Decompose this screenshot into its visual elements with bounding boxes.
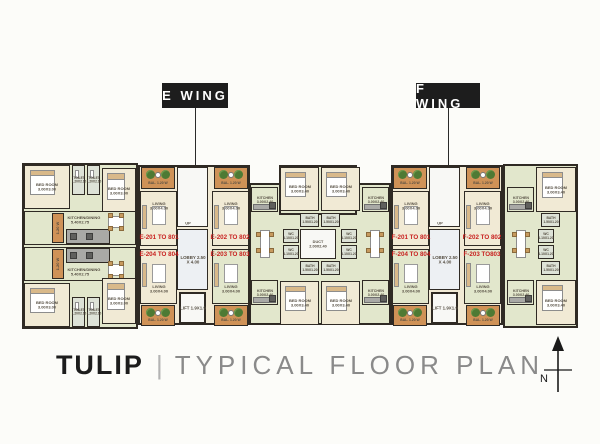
kitchen-room: KITCHEN 3.00X2.40 [362,280,389,305]
pillow [542,172,563,178]
room-label: DUCT 2.00X2.40 [306,240,330,249]
chair [366,232,371,237]
room-room: LOBBY 2.50 X 4.00 [177,229,208,290]
living-room: LIVING 3.00X4.00 [464,249,501,304]
wet-room: TOILET 1.20X2.10 [87,165,100,195]
rug [404,206,419,225]
chair [108,226,113,231]
counter-room [66,248,110,263]
plant-icon [486,170,495,179]
toilet-fixture [90,170,94,178]
table-room [104,262,128,278]
kitchen-room: KITCHEN 3.00X2.40 [507,187,534,212]
living-room: LIVING 3.00X4.00 [392,191,429,246]
room-label: BAL. 1.20 W [400,181,421,185]
appliance [70,252,77,259]
plant-icon [161,170,170,179]
rug [404,264,419,283]
title-separator: | [156,350,163,381]
bedroom-room: BED ROOM 3.00X3.40 [321,167,360,211]
stairs-room [429,167,460,227]
room-room: BATH 1.50X1.20 [541,213,560,227]
plant-icon [234,170,243,179]
room-room: WC 1.10X1.20 [283,229,299,243]
chair [379,232,384,237]
room-label: WC 1.10X1.20 [339,232,360,240]
sofa [466,263,470,287]
wet-room: TOILET 1.20X2.10 [87,297,100,327]
room-room: BATH 1.50X1.20 [300,261,319,275]
room-label: BAL. 1.20 W [148,318,169,322]
appliance [86,252,93,259]
room-label: BATH 1.50X1.20 [320,216,341,224]
pillow [30,288,55,294]
room-room: BATH 1.50X1.20 [300,213,319,227]
chair [119,213,124,218]
chair [366,248,371,253]
pillow [30,170,55,176]
room-room: WC 1.10X1.20 [283,245,299,259]
room-label: BAL. 1.20 W [400,318,421,322]
balcony-table [407,172,413,178]
chair [119,226,124,231]
living-room: LIVING 3.00X4.00 [140,249,177,304]
balcony-table [228,172,234,178]
chair [379,248,384,253]
room-label: BATH 1.50X1.20 [299,264,320,272]
balcony-room: BAL. 1.20 W [141,305,175,326]
bedroom-room: BED ROOM 3.00X3.40 [536,167,576,212]
sofa [214,205,218,229]
pillow [107,283,125,289]
room-label: LOBBY 2.50 X 4.00 [179,254,207,264]
room-label: WC 1.10X1.20 [281,232,302,240]
room-room: BATH 1.50X1.20 [321,261,340,275]
room-label: WC 1.10X1.20 [339,248,360,256]
room-label: BAL. 1.20 W [148,181,169,185]
bedroom-room: BED ROOM 3.00X3.40 [536,280,576,325]
chair [108,213,113,218]
room-label: 1.20 W [56,216,61,241]
room-label: BAL. 1.20 W [221,181,242,185]
balcony-table [155,172,161,178]
plant-icon [486,308,495,317]
balcony-room: BAL. 1.20 W [393,167,427,189]
room-label: BAL. 1.20 W [473,181,494,185]
balcony-table [228,310,234,316]
rug [152,264,167,283]
room-room: 1.20 W [52,213,64,243]
chair [256,248,261,253]
room-label: LIVING 3.00X4.00 [398,285,423,294]
room-room: WC 1.10X1.20 [341,245,357,259]
room-room: LOBBY 2.50 X 4.00 [429,229,460,290]
chair [119,261,124,266]
living-room: LIVING 3.00X4.00 [464,191,501,246]
north-label: N [540,373,548,385]
appliance [269,202,276,209]
kitchen-room: KITCHEN 3.00X2.40 [507,280,534,305]
living-room: LIVING 3.00X4.00 [212,191,249,246]
chair [256,232,261,237]
chair [512,232,517,237]
pillow [542,285,563,291]
duct-room: DUCT 2.00X2.40 [300,229,336,259]
sofa [394,263,398,287]
room-label: KITCHEN/DINING 5.40X2.75 [68,216,93,225]
toilet-fixture [75,170,79,178]
appliance [525,295,532,302]
room-label: BATH 1.50X1.20 [320,264,341,272]
appliance [380,295,387,302]
bedroom-room: BED ROOM 3.00X3.00 [102,168,136,214]
chair [512,248,517,253]
plant-icon [161,308,170,317]
bedroom-room: BED ROOM 3.00X3.40 [321,281,360,325]
balcony-room: BAL. 1.20 W [466,305,500,326]
lift-room: LIFT 1.9X1.9 [179,292,206,324]
north-arrow-icon: N [536,332,580,396]
living-room: LIVING 3.00X4.00 [140,191,177,246]
plant-icon [413,170,422,179]
plan-type-title: TYPICAL FLOOR PLAN [175,350,544,381]
table-room [367,226,383,262]
room-label: BATH 1.50X1.20 [540,264,561,272]
rug [224,206,239,225]
plant-icon [234,308,243,317]
rug [224,264,239,283]
bedroom-room: BED ROOM 3.00X3.40 [280,167,319,211]
kitchen-room: KITCHEN 3.00X2.40 [362,187,389,212]
sofa [142,205,146,229]
room-label: KITCHEN/DINING 5.40X2.75 [68,267,93,276]
bedroom-room: BED ROOM 3.00X3.00 [24,165,70,209]
toilet-fixture [90,302,94,310]
chair [269,248,274,253]
project-name: TULIP [56,350,144,381]
bedroom-room: BED ROOM 3.00X3.00 [24,283,70,327]
chair [525,232,530,237]
wet-room: TOILET 1.20X2.10 [72,297,85,327]
balcony-room: BAL. 1.20 W [466,167,500,189]
sofa [214,263,218,287]
room-label: LIVING 3.00X4.00 [218,285,243,294]
rug [152,206,167,225]
room-label: WC 1.10X1.20 [536,248,557,256]
floor-plan-page: E WING F WING BED ROOM 3.00X3.00TOILET 1… [0,0,600,444]
rug [476,206,491,225]
appliance [86,233,93,240]
bedroom-room: BED ROOM 3.00X3.00 [102,278,136,324]
living-room: LIVING 3.00X4.00 [392,249,429,304]
appliance [269,295,276,302]
room-room: WC 1.10X1.20 [538,229,554,243]
balcony-table [480,172,486,178]
room-room: BATH 1.50X1.20 [321,213,340,227]
room-label: LIVING 3.00X4.00 [470,285,495,294]
balcony-room: BAL. 1.20 W [393,305,427,326]
balcony-room: BAL. 1.20 W [214,305,248,326]
balcony-room: BAL. 1.20 W [141,167,175,189]
balcony-table [407,310,413,316]
chair [108,261,113,266]
room-label: LIFT 1.9X1.9 [431,305,459,310]
room-label: BATH 1.50X1.20 [299,216,320,224]
sofa [142,263,146,287]
room-label: BAL. 1.20 W [221,318,242,322]
room-label: 1.20 W [56,252,61,277]
appliance [70,233,77,240]
room-label: LOBBY 2.50 X 4.00 [431,254,459,264]
room-room: WC 1.10X1.20 [538,245,554,259]
wet-room: TOILET 1.20X2.10 [72,165,85,195]
living-room: LIVING 3.00X4.00 [212,249,249,304]
toilet-fixture [75,302,79,310]
room-label: BATH 1.50X1.20 [540,216,561,224]
plant-icon [413,308,422,317]
room-label: BAL. 1.20 W [473,318,494,322]
sofa [394,205,398,229]
table-room [513,226,529,262]
room-room: 1.20 W [52,249,64,279]
pillow [326,172,347,178]
room-label: LIFT 1.9X1.9 [179,305,207,310]
counter-room [66,229,110,244]
pillow [326,286,347,292]
chair [525,248,530,253]
room-room: WC 1.10X1.20 [341,229,357,243]
kitchen-room: KITCHEN 3.00X2.40 [251,280,278,305]
appliance [525,202,532,209]
rug [476,264,491,283]
room-label: WC 1.10X1.20 [281,248,302,256]
page-title: TULIP | TYPICAL FLOOR PLAN [0,350,600,381]
pillow [285,286,306,292]
stairs-room [177,167,208,227]
appliance [380,202,387,209]
chair [269,232,274,237]
pillow [107,173,125,179]
pillow [285,172,306,178]
kitchen-room: KITCHEN 3.00X2.40 [251,187,278,212]
bedroom-room: BED ROOM 3.00X3.40 [280,281,319,325]
room-label: LIVING 3.00X4.00 [146,285,171,294]
balcony-room: BAL. 1.20 W [214,167,248,189]
sofa [466,205,470,229]
table-room [257,226,273,262]
room-label: WC 1.10X1.20 [536,232,557,240]
balcony-table [155,310,161,316]
balcony-table [480,310,486,316]
table-room [104,214,128,230]
room-room: BATH 1.50X1.20 [541,261,560,275]
lift-room: LIFT 1.9X1.9 [431,292,458,324]
